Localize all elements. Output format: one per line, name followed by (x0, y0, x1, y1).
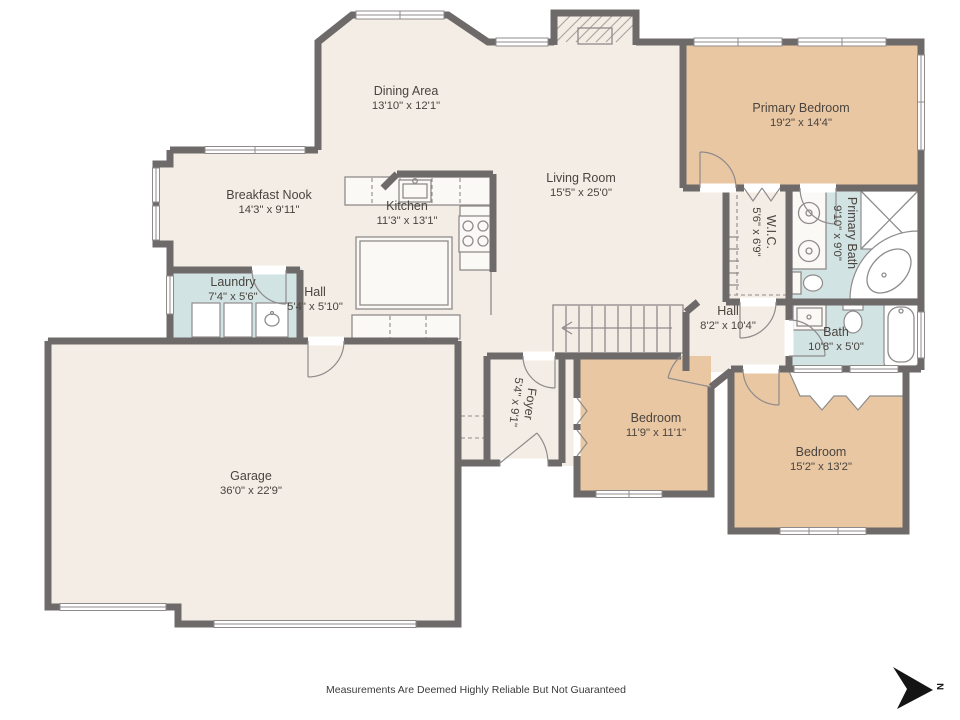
room-dims: 19'2" x 14'4" (752, 116, 849, 130)
room-dims: 8'2" x 10'4" (700, 319, 756, 333)
room-label-living-room: Living Room 15'5" x 25'0" (546, 170, 615, 200)
room-dims: 9'10" x 9'0" (830, 197, 844, 269)
room-name: Hall (700, 303, 756, 319)
room-dims: 13'10" x 12'1" (372, 99, 440, 113)
room-name: Breakfast Nook (226, 187, 311, 203)
room-dims: 15'5" x 25'0" (546, 186, 615, 200)
room-label-bedroom-1: Bedroom 11'9" x 11'1" (626, 410, 686, 440)
room-dims: 36'0" x 22'9" (220, 484, 282, 498)
room-label-wic: W.I.C. 5'6" x 6'9" (749, 207, 779, 256)
room-label-breakfast-nook: Breakfast Nook 14'3" x 9'11" (226, 187, 311, 217)
room-label-bath: Bath 10'8" x 5'0" (808, 324, 864, 354)
washer (192, 303, 220, 337)
room-label-bedroom-2: Bedroom 15'2" x 13'2" (790, 444, 852, 474)
room-dims: 7'4" x 5'6" (208, 290, 257, 304)
room-name: Laundry (208, 274, 257, 290)
room-name: Garage (220, 468, 282, 484)
disclaimer-text: Measurements Are Deemed Highly Reliable … (326, 684, 626, 696)
room-label-foyer: Foyer 5'4" x 9'1" (505, 377, 541, 430)
room-name: Bath (808, 324, 864, 340)
north-label: N (934, 683, 945, 690)
room-name: Bedroom (790, 444, 852, 460)
room-name: W.I.C. (763, 207, 779, 256)
kitchen-island (356, 237, 452, 309)
room-dims: 10'8" x 5'0" (808, 340, 864, 354)
kitchen-counter-bottom (352, 315, 460, 339)
room-name: Dining Area (372, 83, 440, 99)
north-arrow-icon (893, 667, 933, 709)
room-dims: 14'3" x 9'11" (226, 203, 311, 217)
room-name: Hall (287, 284, 343, 300)
room-dims: 15'2" x 13'2" (790, 460, 852, 474)
fireplace-area (552, 13, 638, 45)
room-label-primary-bath: Primary Bath 9'10" x 9'0" (830, 197, 860, 269)
room-name: Living Room (546, 170, 615, 186)
exterior-strip (713, 390, 729, 529)
laundry-sink (256, 303, 288, 337)
room-label-dining-area: Dining Area 13'10" x 12'1" (372, 83, 440, 113)
dryer (224, 303, 252, 337)
room-name: Primary Bedroom (752, 100, 849, 116)
room-name: Primary Bath (844, 197, 860, 269)
room-dims: 5'4" x 5'10" (287, 300, 343, 314)
room-label-hall-2: Hall 8'2" x 10'4" (700, 303, 756, 333)
room-dims: 5'6" x 6'9" (749, 207, 763, 256)
room-name: Bedroom (626, 410, 686, 426)
room-label-kitchen: Kitchen 11'3" x 13'1" (376, 198, 437, 228)
floor-plan: Dining Area 13'10" x 12'1" Primary Bedro… (0, 0, 960, 720)
toilet-bowl (804, 275, 823, 291)
toilet-tank (792, 272, 801, 294)
room-label-laundry: Laundry 7'4" x 5'6" (208, 274, 257, 304)
room-label-primary-bedroom: Primary Bedroom 19'2" x 14'4" (752, 100, 849, 130)
laundry-fixtures (192, 303, 288, 337)
room-dims: 11'9" x 11'1" (626, 426, 686, 440)
room-label-hall: Hall 5'4" x 5'10" (287, 284, 343, 314)
room-name: Kitchen (376, 198, 437, 214)
room-dims: 11'3" x 13'1" (376, 214, 437, 228)
room-label-garage: Garage 36'0" x 22'9" (220, 468, 282, 498)
